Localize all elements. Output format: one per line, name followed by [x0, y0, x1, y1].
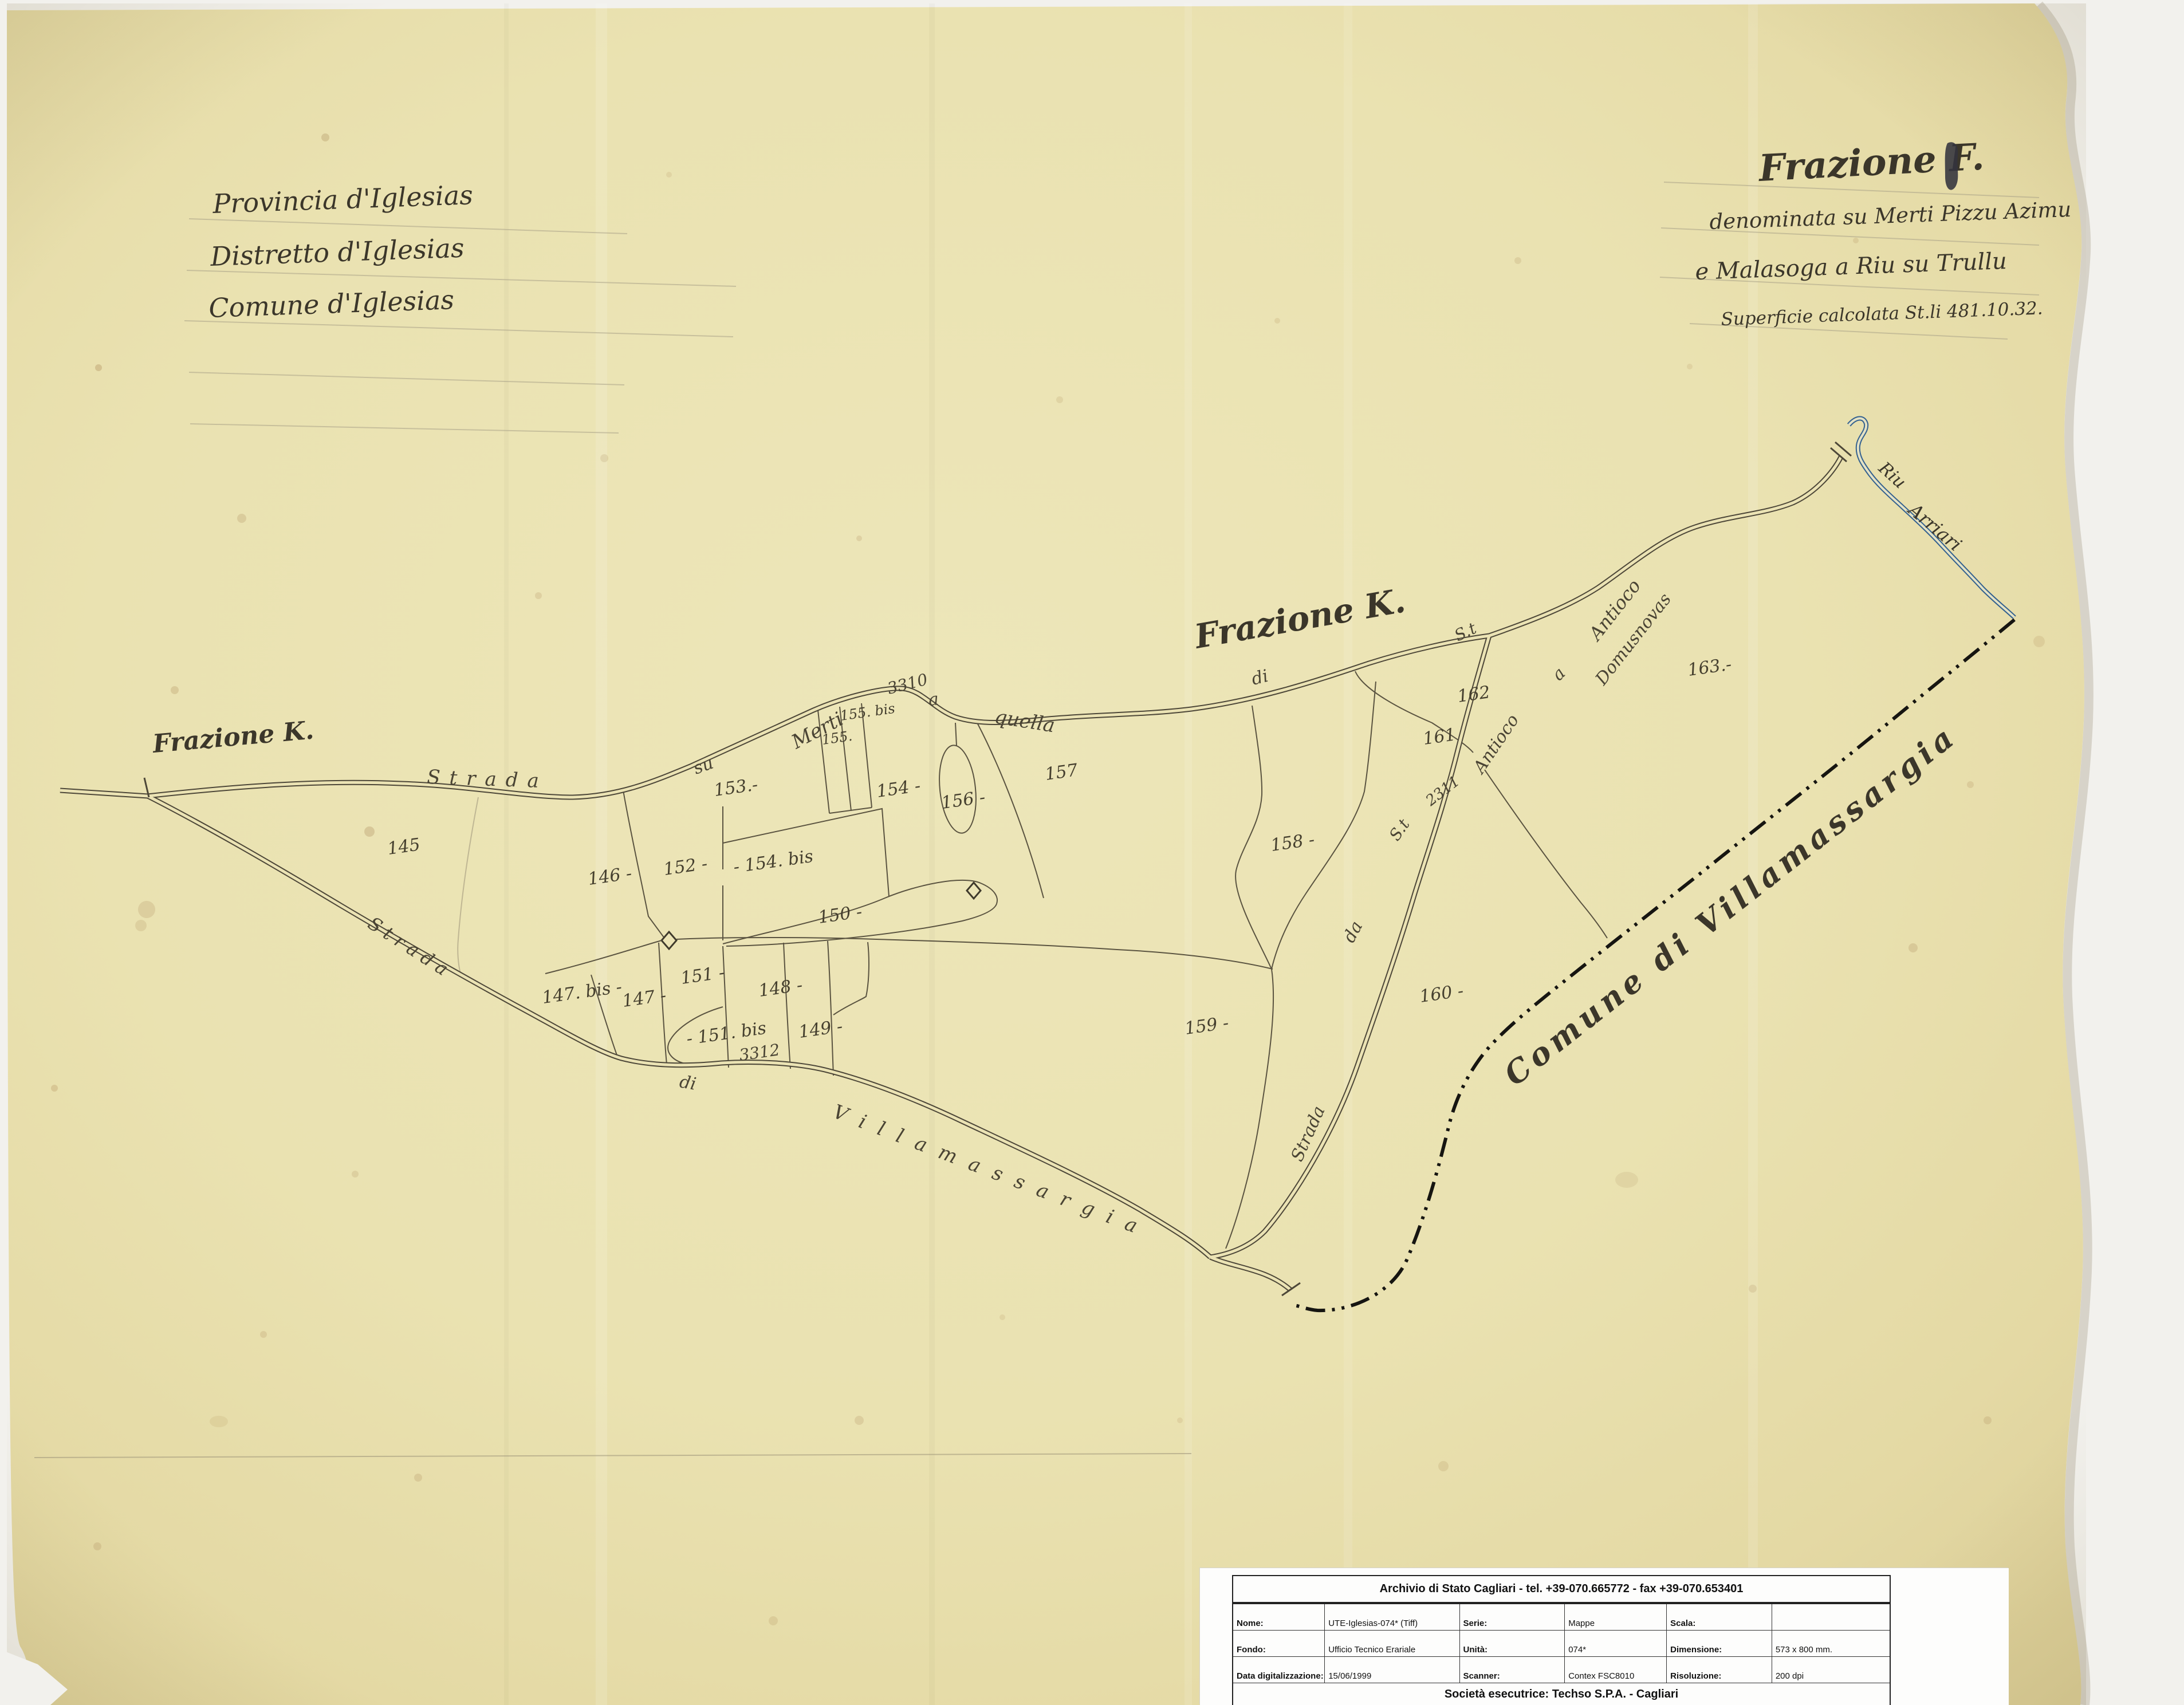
- data-digitalizzazione-label: Data digitalizzazione:: [1233, 1657, 1325, 1683]
- fondo-label: Fondo:: [1233, 1631, 1325, 1657]
- serie-label: Serie:: [1459, 1603, 1565, 1631]
- header-left: Provincia d'Iglesias Distretto d'Iglesia…: [208, 179, 473, 324]
- archive-metadata-panel: Archivio di Stato Cagliari - tel. +39-07…: [1200, 1568, 2009, 1705]
- unita-label: Unità:: [1459, 1631, 1565, 1657]
- scanner-label: Scanner:: [1459, 1657, 1565, 1683]
- road-label: di: [678, 1072, 698, 1094]
- road-label: a: [927, 689, 939, 710]
- nome-label: Nome:: [1233, 1603, 1325, 1631]
- archive-header: Archivio di Stato Cagliari - tel. +39-07…: [1233, 1576, 1890, 1603]
- road-label: Strada: [427, 766, 549, 793]
- risoluzione-value: 200 dpi: [1772, 1657, 1890, 1683]
- data-digitalizzazione-value: 15/06/1999: [1325, 1657, 1459, 1683]
- ink-smudge: [1945, 142, 1958, 190]
- map-scan: Provincia d'Iglesias Distretto d'Iglesia…: [0, 0, 2184, 1705]
- dimensione-value: 573 x 800 mm.: [1772, 1631, 1890, 1657]
- scala-value: [1772, 1603, 1890, 1631]
- table-row: Nome: UTE-Iglesias-074* (Tiff) Serie: Ma…: [1233, 1603, 1890, 1631]
- scanned-map-page: Provincia d'Iglesias Distretto d'Iglesia…: [0, 0, 2184, 1705]
- table-row: Data digitalizzazione: 15/06/1999 Scanne…: [1233, 1657, 1890, 1683]
- dimensione-label: Dimensione:: [1667, 1631, 1772, 1657]
- table-row: Fondo: Ufficio Tecnico Erariale Unità: 0…: [1233, 1631, 1890, 1657]
- archive-metadata-table: Archivio di Stato Cagliari - tel. +39-07…: [1232, 1575, 1891, 1705]
- fondo-value: Ufficio Tecnico Erariale: [1325, 1631, 1459, 1657]
- serie-value: Mappe: [1565, 1603, 1667, 1631]
- societa-esecutrice-footer: Società esecutrice: Techso S.P.A. - Cagl…: [1233, 1683, 1890, 1705]
- unita-value: 074*: [1565, 1631, 1667, 1657]
- scala-label: Scala:: [1667, 1603, 1772, 1631]
- scanner-value: Contex FSC8010: [1565, 1657, 1667, 1683]
- risoluzione-label: Risoluzione:: [1667, 1657, 1772, 1683]
- nome-value: UTE-Iglesias-074* (Tiff): [1325, 1603, 1459, 1631]
